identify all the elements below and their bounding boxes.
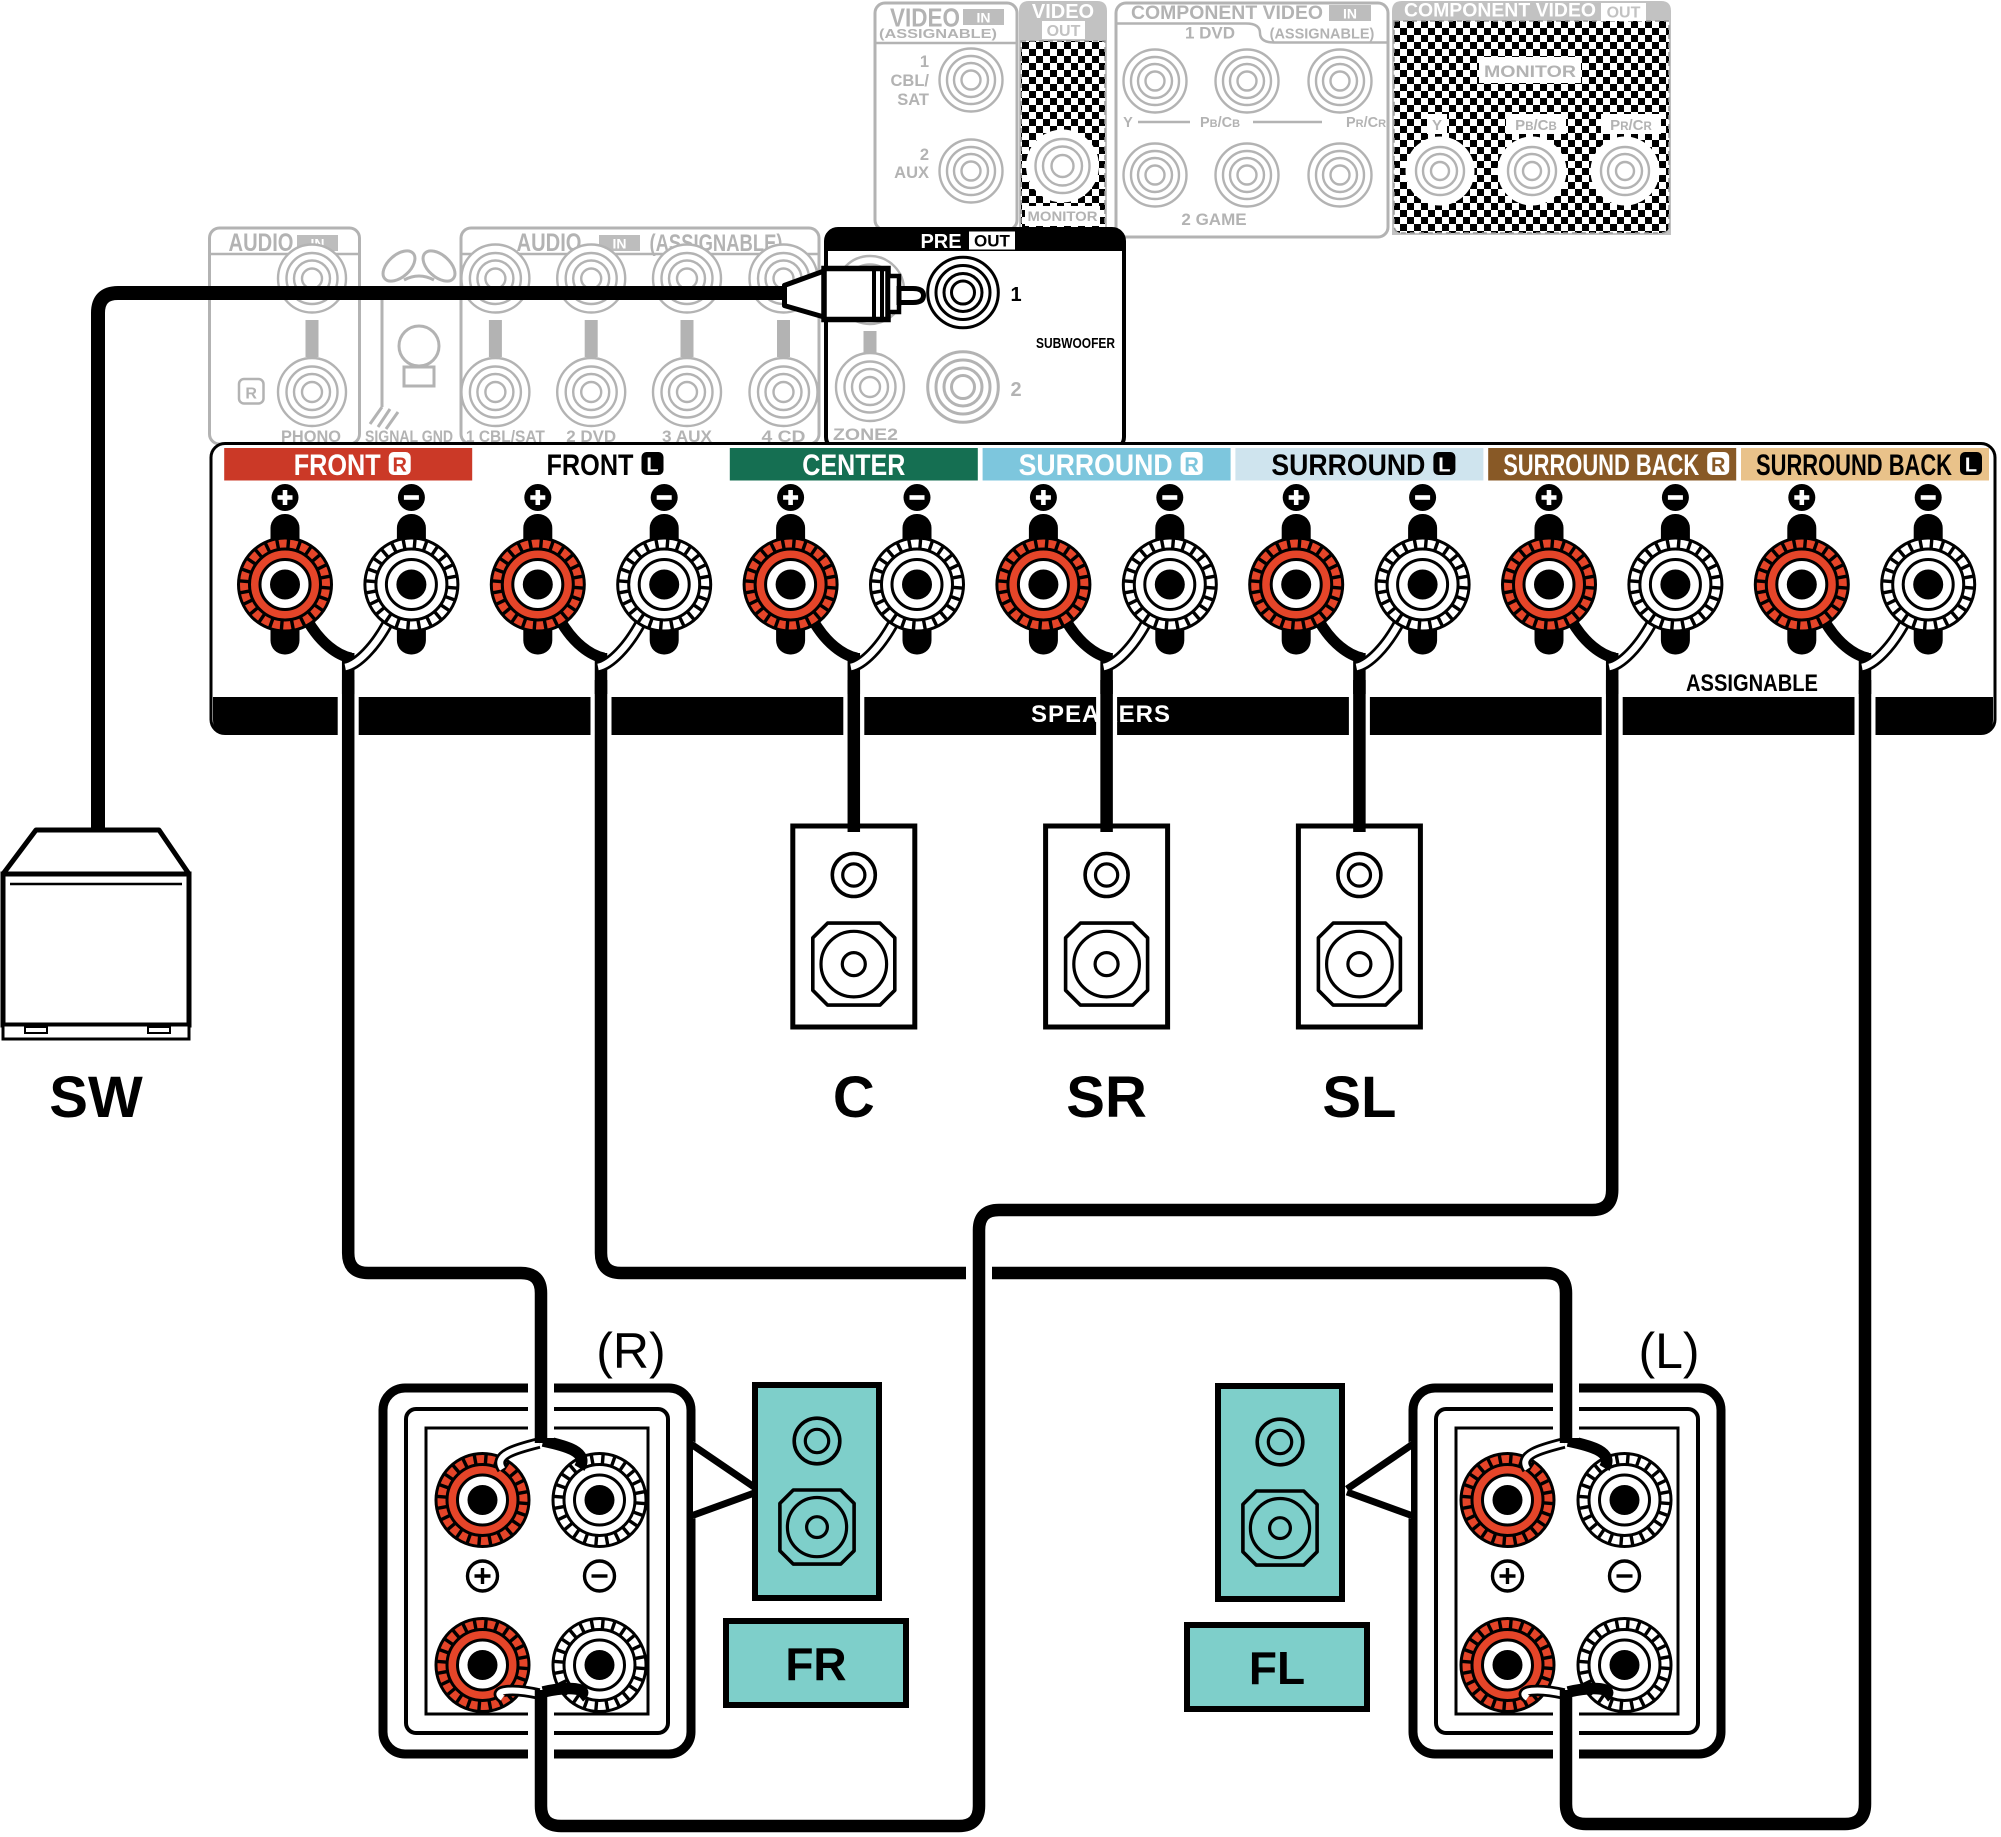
svg-text:R: R: [392, 455, 407, 477]
svg-text:R: R: [1711, 455, 1726, 477]
svg-text:SURROUND BACK: SURROUND BACK: [1756, 449, 1952, 482]
svg-text:PB/CB: PB/CB: [1200, 115, 1240, 131]
svg-text:C: C: [833, 1065, 875, 1130]
svg-text:COMPONENT VIDEO: COMPONENT VIDEO: [1404, 0, 1596, 22]
svg-text:SURROUND: SURROUND: [1271, 449, 1425, 482]
svg-text:L: L: [1965, 455, 1977, 477]
svg-text:R: R: [1184, 455, 1199, 477]
svg-text:(ASSIGNABLE): (ASSIGNABLE): [1270, 27, 1375, 43]
svg-text:SURROUND BACK: SURROUND BACK: [1503, 449, 1699, 482]
svg-text:IN: IN: [613, 236, 627, 252]
svg-text:OUT: OUT: [1047, 23, 1081, 40]
svg-text:SW: SW: [49, 1065, 143, 1130]
svg-text:R: R: [245, 386, 257, 403]
svg-text:VIDEO: VIDEO: [1032, 1, 1094, 23]
svg-text:COMPONENT VIDEO: COMPONENT VIDEO: [1131, 2, 1323, 24]
svg-text:SAT: SAT: [897, 91, 929, 109]
svg-text:ZONE2: ZONE2: [833, 425, 898, 444]
svg-text:1: 1: [1010, 284, 1021, 306]
svg-text:SL: SL: [1322, 1065, 1396, 1130]
svg-text:FR: FR: [785, 1638, 846, 1690]
svg-text:L: L: [1438, 455, 1450, 477]
svg-text:FL: FL: [1249, 1642, 1305, 1694]
svg-text:OUT: OUT: [974, 232, 1011, 251]
svg-text:FRONT: FRONT: [547, 449, 634, 482]
svg-text:MONITOR: MONITOR: [1484, 62, 1576, 81]
svg-text:2: 2: [1010, 379, 1021, 401]
svg-text:ASSIGNABLE: ASSIGNABLE: [1686, 670, 1818, 697]
svg-text:PR/CR: PR/CR: [1346, 115, 1386, 131]
svg-text:OUT: OUT: [1607, 5, 1641, 22]
svg-text:IN: IN: [1343, 6, 1357, 22]
svg-text:SURROUND: SURROUND: [1019, 449, 1173, 482]
svg-text:IN: IN: [977, 10, 991, 26]
svg-text:Y: Y: [1432, 117, 1442, 134]
svg-text:CBL/: CBL/: [891, 72, 930, 90]
svg-text:(ASSIGNABLE): (ASSIGNABLE): [879, 27, 997, 41]
svg-text:2: 2: [920, 146, 929, 164]
svg-text:1 DVD: 1 DVD: [1185, 24, 1235, 43]
svg-text:(L): (L): [1638, 1323, 1699, 1379]
svg-text:(R): (R): [596, 1323, 665, 1379]
svg-text:CENTER: CENTER: [802, 449, 905, 482]
svg-text:SUBWOOFER: SUBWOOFER: [1036, 335, 1115, 352]
svg-text:MONITOR: MONITOR: [1028, 208, 1098, 224]
svg-text:1: 1: [920, 53, 929, 71]
svg-text:SR: SR: [1066, 1065, 1147, 1130]
svg-text:L: L: [646, 455, 658, 477]
svg-text:2 GAME: 2 GAME: [1181, 210, 1246, 229]
svg-text:PRE: PRE: [920, 231, 961, 253]
svg-text:AUX: AUX: [894, 164, 929, 182]
svg-text:FRONT: FRONT: [294, 449, 381, 482]
svg-text:Y: Y: [1123, 115, 1133, 131]
